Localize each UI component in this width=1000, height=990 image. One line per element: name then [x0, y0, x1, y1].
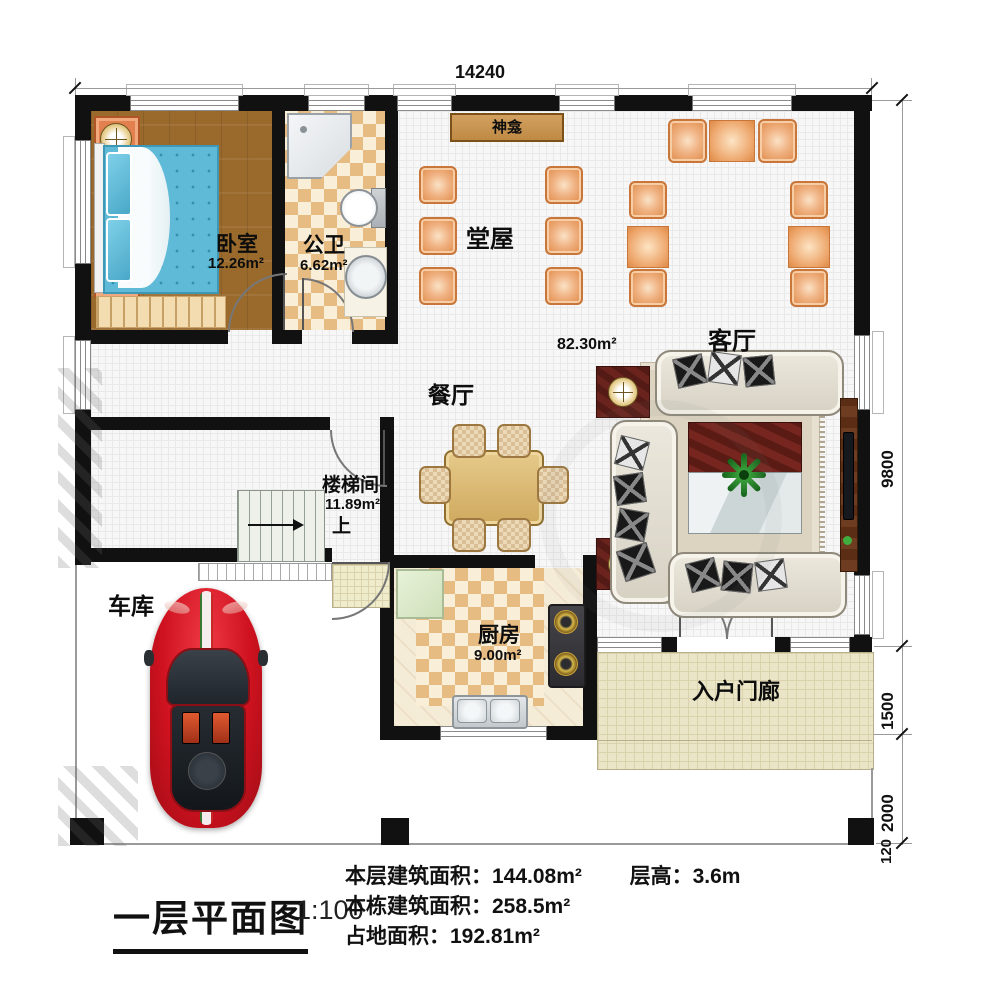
window-sill [393, 84, 456, 96]
porch-floor [597, 652, 874, 770]
column-bottom-right [848, 818, 874, 845]
kitchen-label: 厨房 [478, 625, 520, 646]
chair [629, 269, 667, 307]
stove-burner-icon [554, 652, 578, 676]
plan-stats: 本层建筑面积：144.08m² 层高：3.6m 本栋建筑面积：258.5m² 占… [345, 862, 945, 952]
stairs-up-label: 上 [332, 517, 351, 536]
stairs-direction-arrow [248, 524, 294, 526]
dimension-edge: 120 [878, 824, 895, 864]
column-bottom-middle [381, 818, 409, 845]
hall-label: 堂屋 [466, 228, 514, 252]
stat-floor-area: 本层建筑面积：144.08m² [345, 865, 582, 888]
wall-bedroom-south-3 [352, 330, 398, 344]
dim-ext [874, 646, 912, 647]
window-sill [872, 571, 884, 639]
chair [545, 217, 583, 255]
wall-entrance-2 [775, 637, 790, 652]
wall-entrance-corner [848, 637, 872, 652]
window-right-living-2 [854, 575, 870, 635]
stove-burner-icon [554, 610, 578, 634]
window-top-1 [130, 95, 239, 111]
window-sill [304, 84, 369, 96]
bedroom-area: 12.26m² [208, 256, 264, 271]
window-entrance-east [790, 637, 850, 652]
tv-plant [843, 536, 852, 545]
dining-chair [497, 424, 531, 458]
chair [758, 119, 797, 163]
chair [668, 119, 707, 163]
chair [419, 217, 457, 255]
window-sill [63, 136, 75, 268]
chair [419, 166, 457, 204]
stairs [237, 490, 325, 562]
bedroom-rug [96, 296, 226, 328]
watermark [58, 368, 102, 568]
stat-building-area: 本栋建筑面积：258.5m² [345, 892, 945, 922]
stat-footprint-area: 占地面积：192.81m² [345, 922, 945, 952]
side-table [709, 120, 755, 162]
shrine-label: 神龛 [492, 120, 522, 135]
dimension-width: 14240 [455, 62, 505, 83]
dim-ext [874, 734, 912, 735]
bathroom-area: 6.62m² [300, 258, 348, 273]
watermark [58, 766, 138, 846]
bathroom-label: 公卫 [303, 235, 345, 256]
window-sill [126, 84, 243, 96]
dining-chair [452, 424, 486, 458]
side-table [788, 226, 830, 268]
sofa-pillow [707, 351, 742, 386]
floor-plan-canvas: 神龛 [0, 0, 1000, 990]
porch-label: 入户门廊 [692, 681, 780, 703]
side-table [627, 226, 669, 268]
chair [629, 181, 667, 219]
stairwell-door-leaf [383, 430, 385, 485]
bedroom-label: 卧室 [216, 234, 258, 255]
porch-step-line [597, 740, 872, 741]
living-label: 客厅 [708, 330, 756, 354]
stat-floor-height: 层高：3.6m [630, 865, 741, 888]
window-entrance-west [597, 637, 662, 652]
window-top-5 [692, 95, 792, 111]
window-sill [688, 84, 796, 96]
window-left-bedroom [75, 140, 91, 264]
wall-bedroom-south-1 [75, 330, 228, 344]
wall-entrance-1 [660, 637, 677, 652]
chair [545, 166, 583, 204]
plot-line-bottom [75, 843, 874, 845]
chair [790, 181, 828, 219]
car [150, 588, 262, 828]
tv [843, 432, 854, 520]
stairs-arrowhead-icon [293, 519, 304, 531]
kitchen-sink-basin [457, 699, 487, 723]
dining-label: 餐厅 [428, 384, 474, 407]
dining-chair [452, 518, 486, 552]
fridge [396, 569, 444, 619]
pillow [106, 218, 132, 282]
kitchen-area: 9.00m² [474, 648, 522, 663]
watermark [540, 400, 782, 632]
open-area-label: 82.30m² [557, 337, 617, 353]
shrine: 神龛 [450, 113, 564, 142]
dimension-height: 9800 [878, 398, 898, 488]
sofa-pillow [743, 355, 776, 388]
kitchen-sink-basin [490, 699, 520, 723]
dining-chair [419, 466, 451, 504]
bathroom-sink [345, 255, 387, 299]
shower-head-icon [300, 126, 307, 133]
bedroom-door-leaf [283, 273, 285, 330]
window-top-4 [559, 95, 615, 111]
stairwell-area: 11.89m² [325, 497, 380, 512]
garage-label: 车库 [108, 595, 154, 618]
window-top-2 [308, 95, 365, 111]
dimension-yard-depth: 2000 [878, 752, 898, 832]
wall-bedroom-south-2 [285, 330, 302, 344]
dining-chair [497, 518, 531, 552]
toilet [340, 189, 378, 227]
plan-title: 一层平面图 [113, 888, 308, 954]
garage-door-leaf [332, 562, 388, 564]
chair [790, 269, 828, 307]
window-sill [555, 84, 619, 96]
chair [419, 267, 457, 305]
pillow [106, 152, 132, 216]
dimension-porch-depth: 1500 [878, 650, 898, 730]
wall-stairwell-north [75, 417, 330, 430]
chair [545, 267, 583, 305]
dimension-line-top [75, 88, 872, 89]
window-top-3 [397, 95, 452, 111]
dining-table [444, 450, 544, 526]
wall-kitchen-north [394, 555, 535, 568]
stairwell-label: 楼梯间 [322, 476, 379, 495]
exterior-steps [198, 563, 332, 581]
stats-line-1: 本层建筑面积：144.08m² 层高：3.6m [345, 862, 945, 892]
sofa-pillow [672, 353, 708, 389]
dim-ext [872, 100, 912, 101]
bathroom-door-leaf [302, 278, 304, 330]
